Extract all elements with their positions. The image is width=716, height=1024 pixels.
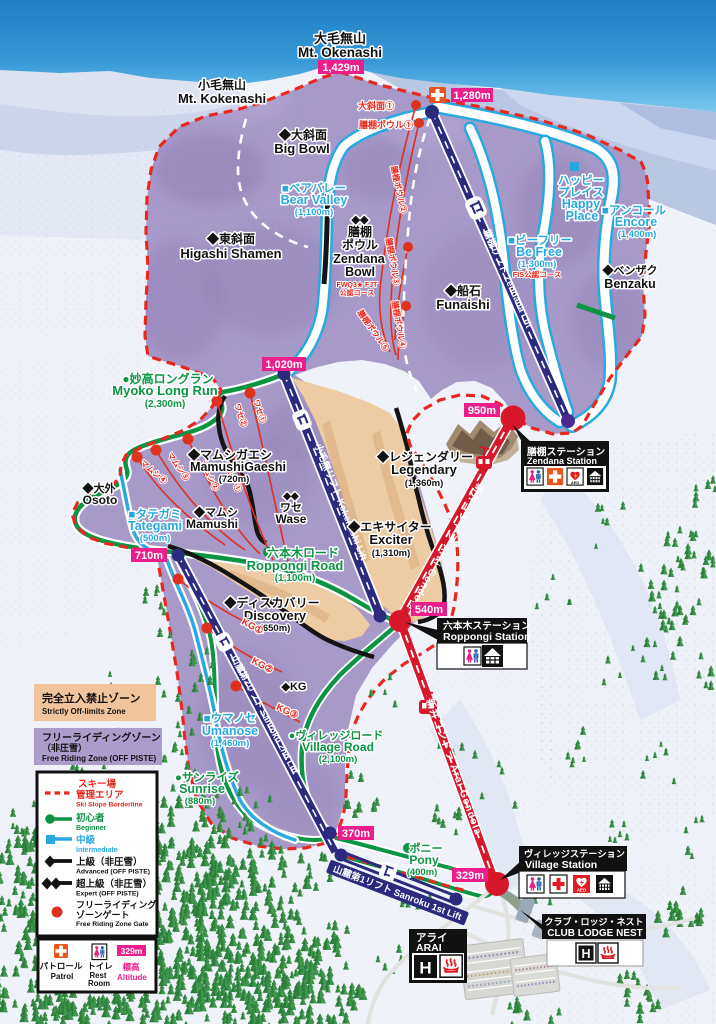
svg-text:Encore: Encore (615, 215, 657, 229)
svg-text:Zendana Station: Zendana Station (527, 456, 597, 466)
svg-text:370m: 370m (342, 828, 370, 840)
svg-text:Mt. Okenashi: Mt. Okenashi (298, 45, 382, 60)
svg-text:MamushiGaeshi: MamushiGaeshi (190, 460, 286, 474)
svg-text:(1,400m): (1,400m) (618, 229, 657, 240)
svg-text:Roppongi Road: Roppongi Road (247, 558, 344, 573)
svg-text:大斜面①: 大斜面① (358, 100, 394, 111)
svg-text:ポウル: ポウル (342, 237, 378, 252)
svg-text:(650m): (650m) (260, 623, 291, 634)
svg-text:膳棚ポウル①: 膳棚ポウル① (359, 119, 413, 130)
svg-text:(1,100m): (1,100m) (275, 573, 316, 584)
svg-text:大毛無山: 大毛無山 (314, 31, 366, 46)
svg-text:フリーライディング: フリーライディング (76, 899, 156, 910)
svg-text:ヴィレッジステーション: ヴィレッジステーション (524, 848, 625, 859)
svg-text:◆船石: ◆船石 (444, 283, 481, 298)
svg-text:CLUB LODGE NEST: CLUB LODGE NEST (547, 928, 643, 939)
svg-text:329m: 329m (121, 946, 143, 956)
svg-text:FIS公認コース: FIS公認コース (513, 269, 562, 279)
svg-text:標高: 標高 (122, 962, 140, 972)
svg-text:(2,300m): (2,300m) (145, 399, 186, 410)
svg-text:Bear Valley: Bear Valley (281, 193, 348, 207)
svg-text:上級（非圧雪）: 上級（非圧雪） (76, 856, 143, 868)
svg-text:Village Road: Village Road (302, 740, 374, 754)
svg-text:Tategami: Tategami (128, 519, 182, 533)
svg-text:Strictly Off-limits Zone: Strictly Off-limits Zone (42, 707, 126, 716)
svg-text:(1,100m): (1,100m) (295, 207, 334, 218)
svg-text:Umanose: Umanose (202, 724, 258, 738)
svg-text:Zendana: Zendana (333, 252, 385, 266)
svg-text:Osoto: Osoto (83, 493, 118, 507)
svg-text:(1,460m): (1,460m) (211, 738, 250, 749)
svg-text:Sunrise: Sunrise (179, 782, 225, 796)
svg-text:Be Free: Be Free (516, 245, 562, 259)
svg-text:Bowl: Bowl (345, 265, 375, 279)
svg-text:710m: 710m (135, 550, 163, 562)
svg-text:1,429m: 1,429m (322, 62, 360, 74)
svg-text:Mamushi: Mamushi (186, 517, 238, 531)
svg-text:スキー場: スキー場 (78, 778, 117, 790)
svg-text:Legendary: Legendary (391, 462, 458, 477)
svg-text:(500m): (500m) (140, 533, 171, 544)
svg-text:(880m): (880m) (185, 796, 216, 807)
svg-text:Altitude: Altitude (117, 973, 147, 982)
svg-text:（非圧雪）: （非圧雪） (42, 742, 87, 753)
svg-text:Mt. Kokenashi: Mt. Kokenashi (178, 91, 266, 106)
svg-text:◆東斜面: ◆東斜面 (206, 231, 255, 246)
svg-text:(400m): (400m) (407, 867, 438, 878)
svg-text:H: H (419, 959, 431, 978)
svg-text:ゾーンゲート: ゾーンゲート (76, 909, 130, 920)
svg-text:Big Bowl: Big Bowl (274, 141, 330, 156)
svg-text:小毛無山: 小毛無山 (198, 77, 246, 92)
svg-text:Wase: Wase (276, 512, 307, 526)
svg-text:初心者: 初心者 (76, 812, 105, 824)
svg-text:Funaishi: Funaishi (436, 297, 489, 312)
svg-text:1,280m: 1,280m (453, 90, 491, 102)
svg-text:完全立入禁止ゾーン: 完全立入禁止ゾーン (42, 691, 140, 705)
svg-text:Ski Slope Borderline: Ski Slope Borderline (76, 802, 143, 809)
svg-text:540m: 540m (415, 604, 443, 616)
svg-text:◆◆: ◆◆ (282, 491, 299, 502)
svg-text:Pony: Pony (409, 853, 439, 867)
svg-text:Village Station: Village Station (525, 859, 597, 871)
svg-text:Advanced (OFF PISTE): Advanced (OFF PISTE) (76, 869, 150, 876)
svg-text:Intermediate: Intermediate (76, 847, 118, 854)
svg-text:Free Riding Zone Gate: Free Riding Zone Gate (76, 921, 149, 928)
svg-text:Patrol: Patrol (51, 972, 74, 981)
svg-text:Beginner: Beginner (76, 825, 107, 832)
svg-text:950m: 950m (468, 405, 496, 417)
svg-text:Myoko Long Run: Myoko Long Run (112, 383, 217, 398)
svg-text:中級: 中級 (76, 834, 96, 846)
svg-text:パトロール: パトロール (40, 961, 83, 971)
svg-text:Expert (OFF PISTE): Expert (OFF PISTE) (76, 891, 139, 898)
svg-text:管理エリア: 管理エリア (76, 789, 124, 801)
svg-text:Roppongi Station: Roppongi Station (443, 631, 530, 643)
svg-text:Room: Room (88, 979, 110, 988)
svg-text:Place: Place (566, 209, 599, 223)
svg-text:(1,310m): (1,310m) (372, 548, 411, 559)
svg-text:Benzaku: Benzaku (604, 277, 655, 291)
svg-text:ハッピー: ハッピー (558, 174, 604, 187)
svg-text:超上級（非圧雪）: 超上級（非圧雪） (75, 878, 152, 890)
svg-text:トイレ: トイレ (87, 961, 113, 971)
svg-text:公認コース: 公認コース (340, 288, 375, 297)
svg-text:◆大斜面: ◆大斜面 (278, 127, 327, 142)
svg-text:◆ベンザク: ◆ベンザク (602, 263, 658, 277)
svg-text:FWQ3★ FJT: FWQ3★ FJT (337, 281, 379, 289)
svg-text:1,020m: 1,020m (265, 359, 303, 371)
svg-text:Exciter: Exciter (369, 532, 412, 547)
svg-text:Free Riding Zone (OFF PISTE): Free Riding Zone (OFF PISTE) (42, 754, 157, 763)
svg-text:クラブ・ロッジ・ネスト: クラブ・ロッジ・ネスト (544, 916, 643, 927)
svg-text:(720m): (720m) (219, 474, 250, 485)
svg-text:ARAI: ARAI (416, 942, 442, 954)
svg-text:(2,100m): (2,100m) (319, 754, 358, 765)
svg-text:Higashi Shamen: Higashi Shamen (180, 246, 281, 261)
svg-text:膳棚: 膳棚 (348, 224, 372, 239)
svg-text:(1,360m): (1,360m) (405, 478, 444, 489)
svg-text:329m: 329m (456, 870, 484, 882)
svg-text:◆KG: ◆KG (281, 681, 307, 693)
svg-text:(1,300m): (1,300m) (518, 259, 557, 270)
